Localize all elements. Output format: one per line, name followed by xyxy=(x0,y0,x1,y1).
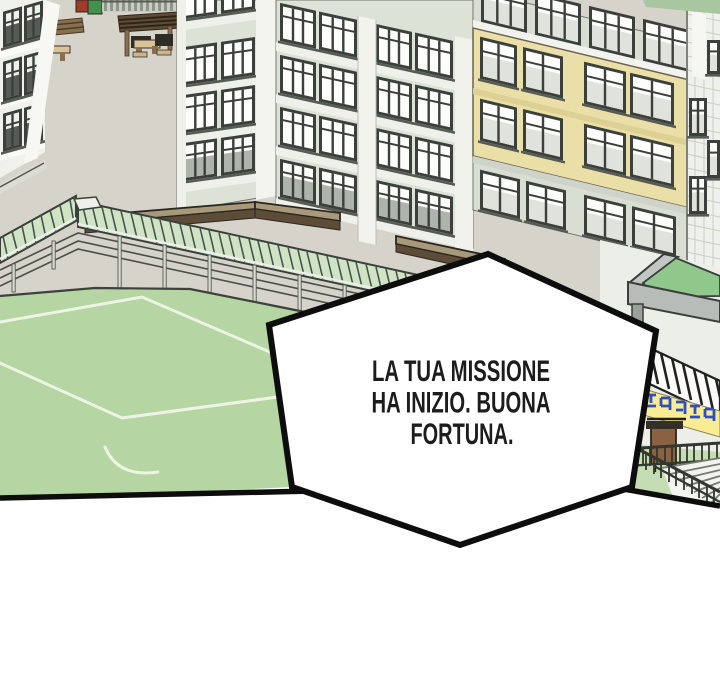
svg-text:HA INIZIO. BUONA: HA INIZIO. BUONA xyxy=(372,387,551,420)
svg-text:FORTUNA.: FORTUNA. xyxy=(411,418,514,451)
svg-text:LA TUA MISSIONE: LA TUA MISSIONE xyxy=(372,355,550,388)
